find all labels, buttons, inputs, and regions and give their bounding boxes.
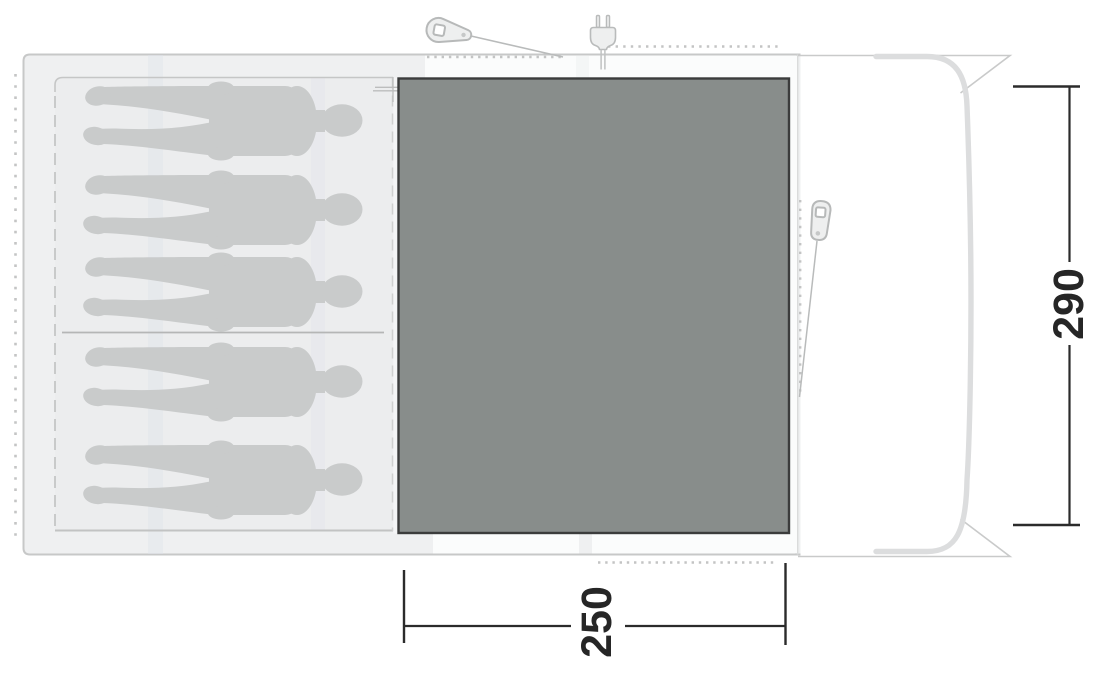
svg-text:250: 250: [573, 586, 621, 658]
svg-text:290: 290: [1045, 268, 1093, 340]
